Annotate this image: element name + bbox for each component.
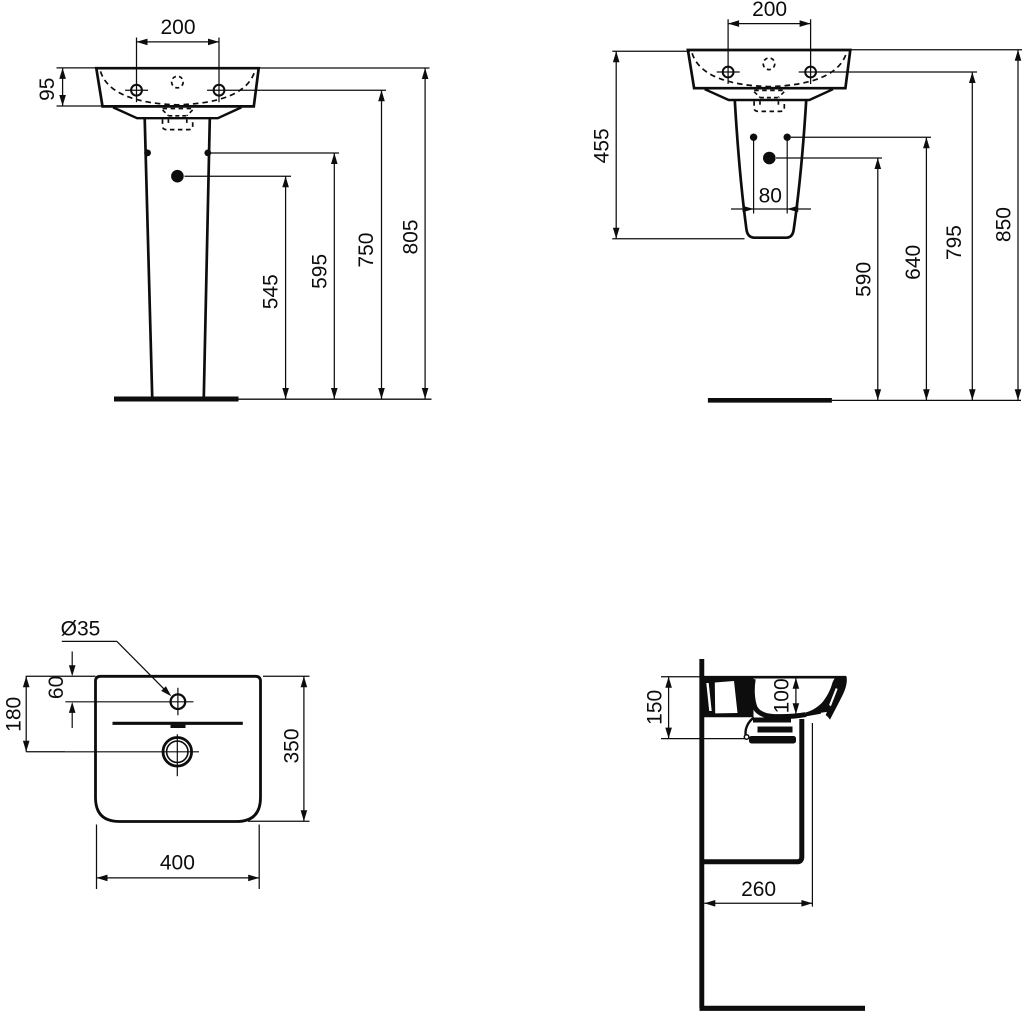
svg-text:200: 200 xyxy=(752,0,787,21)
svg-text:60: 60 xyxy=(45,676,68,699)
svg-text:400: 400 xyxy=(160,852,195,875)
svg-text:Ø35: Ø35 xyxy=(61,617,101,640)
svg-text:200: 200 xyxy=(160,16,195,39)
svg-text:850: 850 xyxy=(993,207,1016,242)
svg-text:80: 80 xyxy=(759,184,782,207)
svg-text:455: 455 xyxy=(590,128,613,163)
svg-text:150: 150 xyxy=(643,690,666,725)
svg-text:595: 595 xyxy=(309,254,332,289)
svg-text:590: 590 xyxy=(853,262,876,297)
svg-text:180: 180 xyxy=(3,697,26,732)
svg-text:795: 795 xyxy=(943,225,966,260)
svg-text:350: 350 xyxy=(281,728,304,763)
svg-text:545: 545 xyxy=(260,274,283,309)
svg-text:95: 95 xyxy=(36,78,59,101)
svg-text:750: 750 xyxy=(355,233,378,268)
svg-text:260: 260 xyxy=(741,878,776,901)
svg-text:100: 100 xyxy=(771,678,794,713)
svg-text:640: 640 xyxy=(902,245,925,280)
svg-text:805: 805 xyxy=(400,219,423,254)
